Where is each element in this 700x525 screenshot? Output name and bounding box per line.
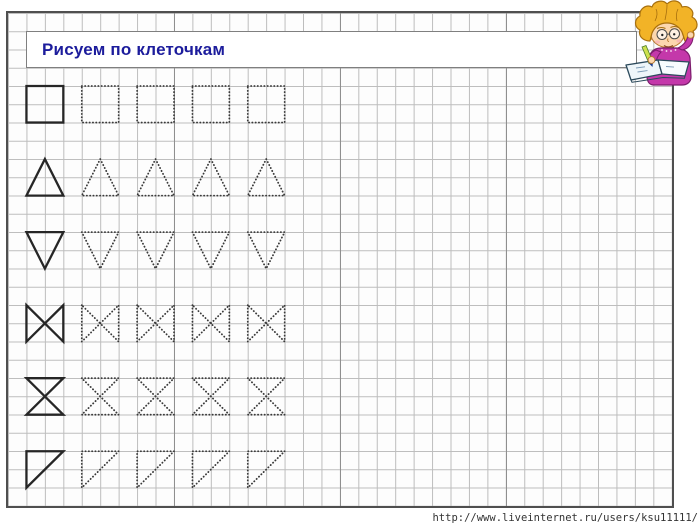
hand [687,32,693,38]
eye [673,33,675,35]
page-title: Рисуем по клеточкам [42,40,225,60]
grid-accent-line [340,13,341,506]
cheek-blush [676,39,681,42]
eye [661,34,663,36]
cheek-blush [655,40,660,43]
grid-paper [6,11,674,508]
source-url-text: http://www.liveinternet.ru/users/ksu1111… [432,512,698,524]
grid-accent-line [174,13,175,506]
child-writing-illustration [620,0,700,88]
worksheet-page: Рисуем по клеточкам [0,0,700,525]
hand-writing [648,57,655,64]
grid-accent-line [506,13,507,506]
title-banner: Рисуем по клеточкам [26,31,637,68]
